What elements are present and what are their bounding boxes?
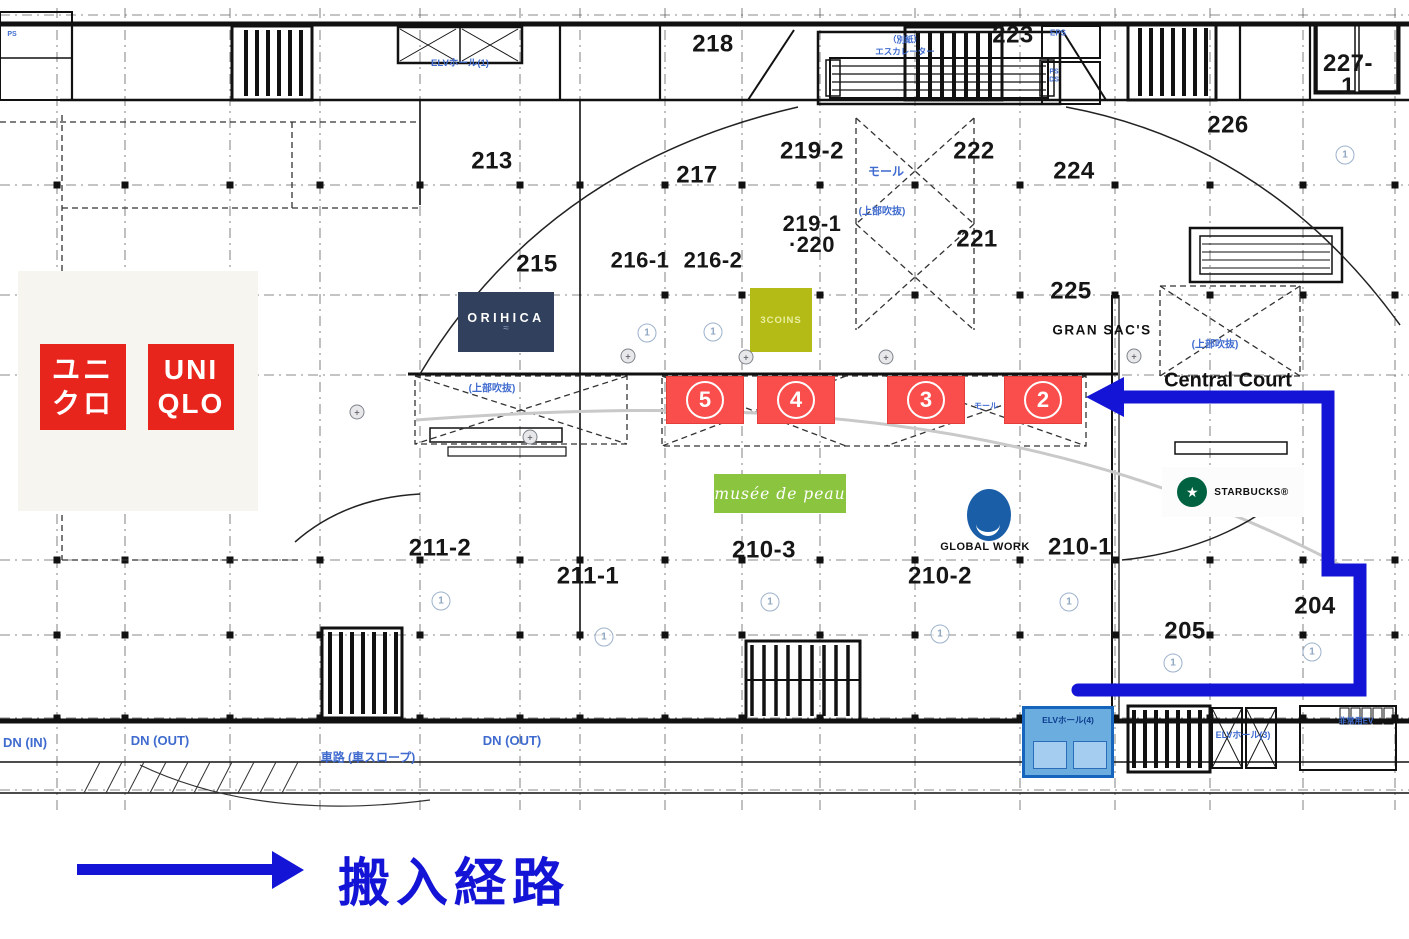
dn-in-label: DN (IN) <box>3 736 47 750</box>
room-label-219-2: 219-2 <box>780 141 844 164</box>
threecoins-logo: 3COINS <box>750 288 812 352</box>
room-label-216-1: 216-1 <box>611 251 670 272</box>
room-label-211-1: 211-1 <box>557 566 620 589</box>
uniqlo-latin-bottom: QLO <box>158 387 225 421</box>
elevator-hall-4-highlight: ELVホール(4) <box>1022 706 1114 778</box>
room-label-211-2: 211-2 <box>409 538 472 561</box>
uniqlo-latin-logo: UNI QLO <box>148 344 234 430</box>
circled-one-marker: 1 <box>595 628 614 647</box>
circled-one-marker: 1 <box>1303 643 1322 662</box>
circled-one-marker: 1 <box>1164 654 1183 673</box>
starbucks-siren-icon: ★ <box>1177 477 1207 507</box>
elv-hall-3-label: ELVホール(3) <box>1216 731 1271 741</box>
room-label-217: 217 <box>676 165 718 188</box>
route-stop-number: 2 <box>1024 381 1062 419</box>
room-label-215: 215 <box>516 254 558 277</box>
circled-one-marker: 1 <box>704 323 723 342</box>
escalator-note: エスカレーター <box>875 47 935 56</box>
void-note-center: (上部吹抜) <box>859 207 906 218</box>
room-label-213: 213 <box>471 151 513 174</box>
void-note-right: (上部吹抜) <box>1192 340 1239 351</box>
musee-name: musée de peau <box>714 485 845 503</box>
room-label-210-2: 210-2 <box>908 566 972 589</box>
route-stop-badge-2: 2 <box>1004 376 1082 424</box>
ramp-label: 車路 (車スロープ) <box>321 751 416 764</box>
room-label-227-1: 227-1 <box>1318 53 1379 99</box>
dn-out-label-2: DN (OUT) <box>483 734 542 748</box>
mall-small-label: モール <box>974 403 998 412</box>
orihica-logo: ORIHICA ≈ <box>458 292 554 352</box>
ps-left-label: PS <box>7 31 16 39</box>
room-label-225: 225 <box>1050 281 1092 304</box>
survey-point-marker: + <box>1127 349 1142 364</box>
room-label-224: 224 <box>1053 161 1095 184</box>
void-note-left: (上部吹抜) <box>469 384 516 395</box>
room-label-210-1: 210-1 <box>1048 537 1112 560</box>
gran-sacs-name: GRAN SAC'S <box>1052 323 1151 338</box>
room-label-204: 204 <box>1294 596 1336 619</box>
room-label-219-1-·220: 219-1 ·220 <box>783 214 842 256</box>
elv-hall-1-label: ELVホール(1) <box>431 59 489 69</box>
room-label-223: 223 <box>992 25 1034 48</box>
survey-point-marker: + <box>350 405 365 420</box>
elevator-hall-4-label: ELVホール(4) <box>1025 714 1111 726</box>
circled-one-marker: 1 <box>761 593 780 612</box>
starbucks-name: STARBUCKS® <box>1214 487 1288 498</box>
musee-de-peau-logo: musée de peau <box>714 474 846 513</box>
room-label-210-3: 210-3 <box>732 540 796 563</box>
circled-one-marker: 1 <box>1060 593 1079 612</box>
global-work-icon <box>967 489 1011 541</box>
uniqlo-latin-top: UNI <box>164 353 218 387</box>
room-label-221: 221 <box>956 229 998 252</box>
mall-label: モール <box>868 165 904 178</box>
starbucks-star-mark: ★ <box>1186 484 1199 501</box>
ramp-hatch-lines <box>84 762 298 793</box>
room-label-216-2: 216-2 <box>684 251 743 272</box>
room-label-222: 222 <box>953 141 995 164</box>
global-work-smile-mark <box>976 520 1000 536</box>
survey-point-marker: + <box>879 350 894 365</box>
uniqlo-kana-logo: ユニ クロ <box>40 344 126 430</box>
uniqlo-sign-panel: ユニ クロ UNI QLO <box>18 271 258 511</box>
starbucks-logo: ★ STARBUCKS® <box>1162 467 1304 517</box>
route-stop-badge-4: 4 <box>757 376 835 424</box>
route-stop-number: 5 <box>686 381 724 419</box>
room-label-218: 218 <box>692 34 734 57</box>
emergency-ev-label: 非常用EV <box>1339 718 1374 727</box>
circled-one-marker: 1 <box>638 324 657 343</box>
circled-one-marker: 1 <box>432 592 451 611</box>
circled-one-marker: 1 <box>931 625 950 644</box>
room-label-226: 226 <box>1207 115 1249 138</box>
delivery-route <box>1078 377 1360 690</box>
orihica-tagline-mark: ≈ <box>503 325 509 333</box>
survey-point-marker: + <box>739 350 754 365</box>
floorplan-canvas: ユニ クロ UNI QLO ORIHICA ≈ 3COINS musée de … <box>0 0 1409 939</box>
elevator-cell <box>1033 741 1067 769</box>
route-stop-number: 4 <box>777 381 815 419</box>
route-stop-badge-5: 5 <box>666 376 744 424</box>
elevator-cell <box>1073 741 1107 769</box>
global-work-name: GLOBAL WORK <box>940 541 1030 553</box>
uniqlo-kana-bottom: クロ <box>52 387 114 421</box>
dn-out-label-1: DN (OUT) <box>131 734 190 748</box>
legend-route-label: 搬入経路 <box>338 841 570 916</box>
survey-point-marker: + <box>621 349 636 364</box>
legend-arrow-shaft <box>77 864 273 875</box>
eps-label: EPS <box>1050 30 1066 39</box>
uniqlo-kana-top: ユニ <box>52 353 114 387</box>
circled-one-marker: 1 <box>1336 146 1355 165</box>
threecoins-name: 3COINS <box>760 315 801 326</box>
survey-point-marker: + <box>523 430 538 445</box>
room-label-205: 205 <box>1164 621 1206 644</box>
bessi-note: （別紙） <box>888 35 922 44</box>
route-stop-badge-3: 3 <box>887 376 965 424</box>
central-court-label: Central Court <box>1164 370 1292 393</box>
legend-arrow-head <box>272 851 304 889</box>
route-stop-number: 3 <box>907 381 945 419</box>
ps-ds-label: PS DS <box>1049 68 1059 83</box>
delivery-route-arrowhead <box>1086 377 1124 417</box>
